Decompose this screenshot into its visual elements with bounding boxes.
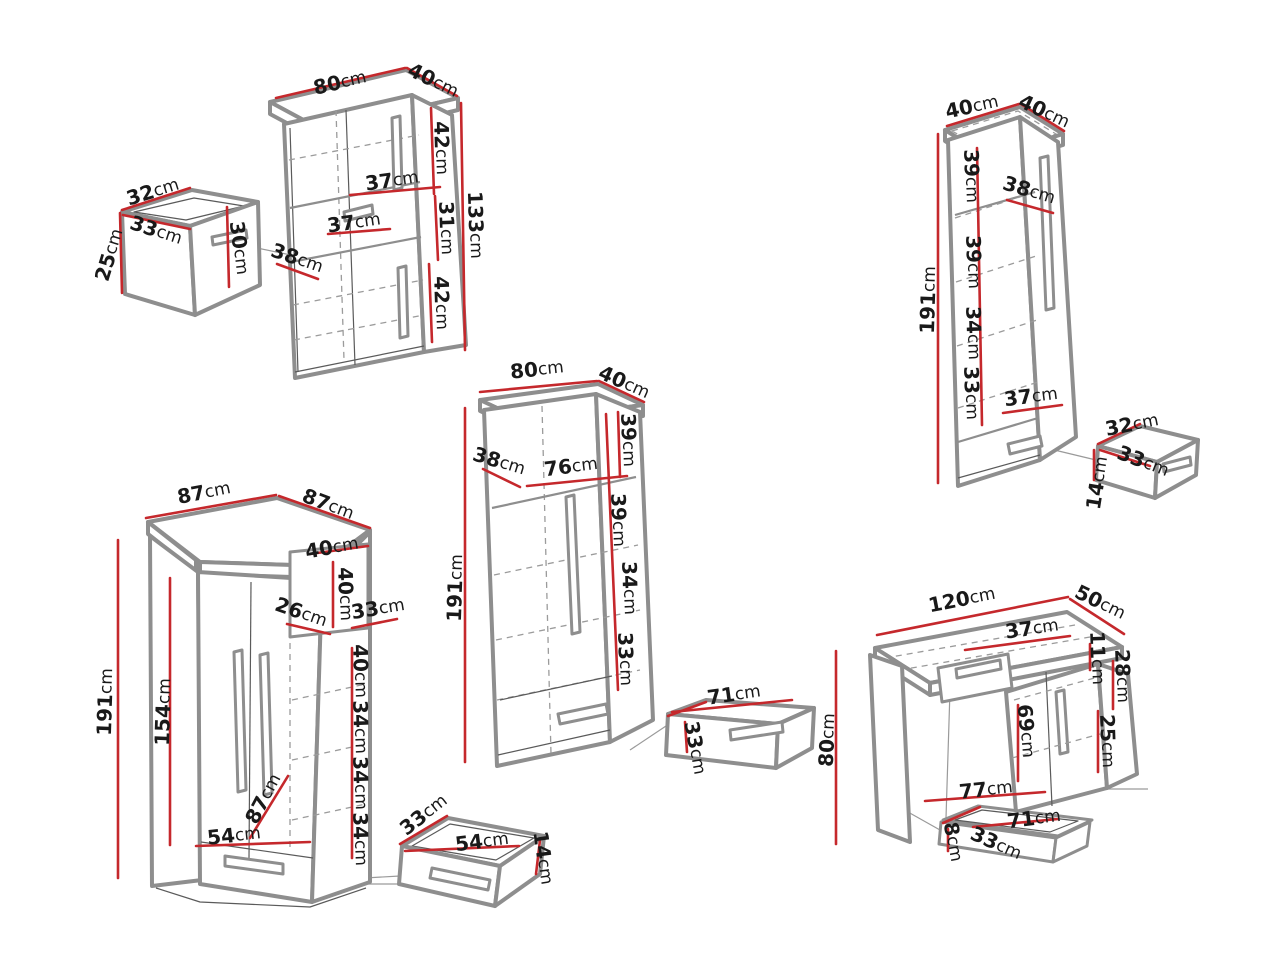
dimension-label: 80cm: [509, 354, 565, 383]
diagram-canvas: 32cm33cm25cm30cm80cm40cm42cm37cm37cm31cm…: [0, 0, 1280, 960]
dimension-label: 133cm: [463, 191, 489, 259]
dimension-label: 39cm: [617, 413, 643, 468]
dimension-label: 34cm: [618, 561, 644, 616]
dimension-label: 77cm: [958, 774, 1014, 803]
dimension-label: 39cm: [962, 235, 988, 290]
dimension-label: 42cm: [430, 121, 456, 176]
dimension-label: 11cm: [1086, 631, 1112, 686]
dimension-label: 28cm: [1111, 649, 1137, 704]
dimension-label: 39cm: [960, 149, 986, 204]
dimension-label: 31cm: [435, 201, 461, 256]
dimension-label: 80cm: [813, 712, 840, 767]
dimension-label: 191cm: [914, 266, 940, 334]
dimension-label: 40cm: [349, 644, 375, 699]
dimension-label: 42cm: [430, 276, 456, 331]
furniture-dimension-diagram: 32cm33cm25cm30cm80cm40cm42cm37cm37cm31cm…: [0, 0, 1280, 960]
dimension-label: 34cm: [962, 306, 988, 361]
dimension-label: 120cm: [926, 580, 997, 616]
dimension-label: 39cm: [607, 493, 633, 548]
dimension-label: 34cm: [349, 756, 375, 811]
dimension-label: 34cm: [349, 700, 375, 755]
dimension-label: 33cm: [960, 366, 986, 421]
dimension-label: 34cm: [349, 812, 375, 867]
dimension-label: 191cm: [91, 668, 117, 736]
lower-door-handle-slot: [398, 266, 408, 338]
dimension-label: 191cm: [441, 554, 467, 622]
dimension-label: 33cm: [614, 632, 640, 687]
dimension-label: 14cm: [1080, 454, 1112, 511]
tall-single-wardrobe: [938, 104, 1076, 486]
desk-left-panel: [870, 655, 910, 842]
dimension-label: 25cm: [1096, 714, 1122, 769]
